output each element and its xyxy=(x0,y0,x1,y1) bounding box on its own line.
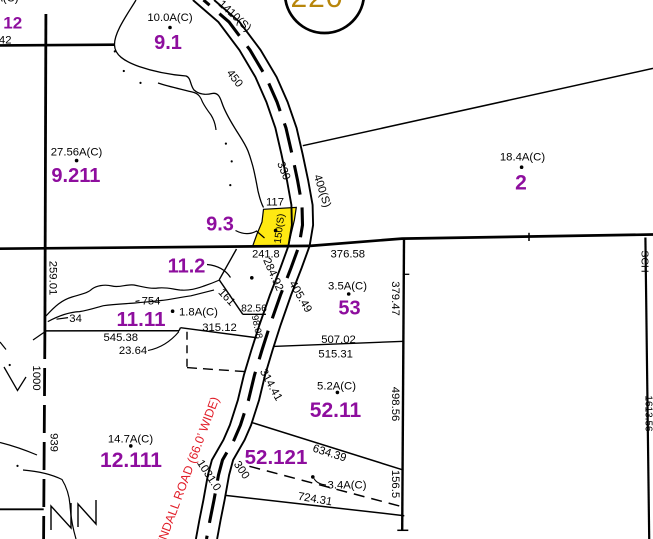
svg-text:117: 117 xyxy=(266,197,284,209)
svg-text:379.47: 379.47 xyxy=(389,281,401,316)
svg-text:SCH: SCH xyxy=(639,250,651,272)
svg-text:498.56: 498.56 xyxy=(389,387,401,422)
svg-text:52.121: 52.121 xyxy=(245,446,308,469)
svg-text:156.5: 156.5 xyxy=(389,470,401,498)
svg-text:12: 12 xyxy=(3,14,22,33)
svg-text:14.7A(C): 14.7A(C) xyxy=(108,434,153,446)
svg-text:12.111: 12.111 xyxy=(100,449,162,472)
svg-text:376.58: 376.58 xyxy=(331,249,366,261)
svg-text:11.2: 11.2 xyxy=(168,256,206,278)
svg-text:9.211: 9.211 xyxy=(51,165,100,187)
svg-text:11.11: 11.11 xyxy=(116,308,165,331)
svg-text:23.64: 23.64 xyxy=(119,345,147,357)
svg-text:2: 2 xyxy=(515,172,527,195)
svg-text:53: 53 xyxy=(338,298,360,320)
svg-text:4A(C): 4A(C) xyxy=(0,0,19,5)
svg-text:259.01: 259.01 xyxy=(47,261,59,296)
svg-text:754: 754 xyxy=(142,296,161,308)
svg-text:1613.56: 1613.56 xyxy=(643,395,653,432)
svg-text:939: 939 xyxy=(48,433,60,452)
svg-text:1000: 1000 xyxy=(30,365,42,390)
svg-text:27.56A(C): 27.56A(C) xyxy=(51,147,103,159)
svg-text:315.12: 315.12 xyxy=(202,322,237,334)
svg-text:1.8A(C): 1.8A(C) xyxy=(179,307,218,319)
svg-text:9.3: 9.3 xyxy=(206,214,234,236)
svg-text:18.4A(C): 18.4A(C) xyxy=(500,152,545,164)
svg-text:82.56: 82.56 xyxy=(241,304,267,315)
svg-text:34: 34 xyxy=(69,313,82,325)
svg-text:42: 42 xyxy=(0,35,12,47)
svg-text:515.31: 515.31 xyxy=(318,349,353,361)
svg-text:10.0A(C): 10.0A(C) xyxy=(147,12,192,24)
svg-text:3.5A(C): 3.5A(C) xyxy=(328,281,367,293)
svg-text:52.11: 52.11 xyxy=(310,399,362,422)
svg-text:9.1: 9.1 xyxy=(154,32,182,54)
svg-text:5.2A(C): 5.2A(C) xyxy=(317,381,356,393)
svg-text:3.4A(C): 3.4A(C) xyxy=(328,480,367,492)
svg-text:507.02: 507.02 xyxy=(321,334,356,346)
svg-text:545.38: 545.38 xyxy=(104,332,139,344)
svg-text:220: 220 xyxy=(290,0,343,14)
